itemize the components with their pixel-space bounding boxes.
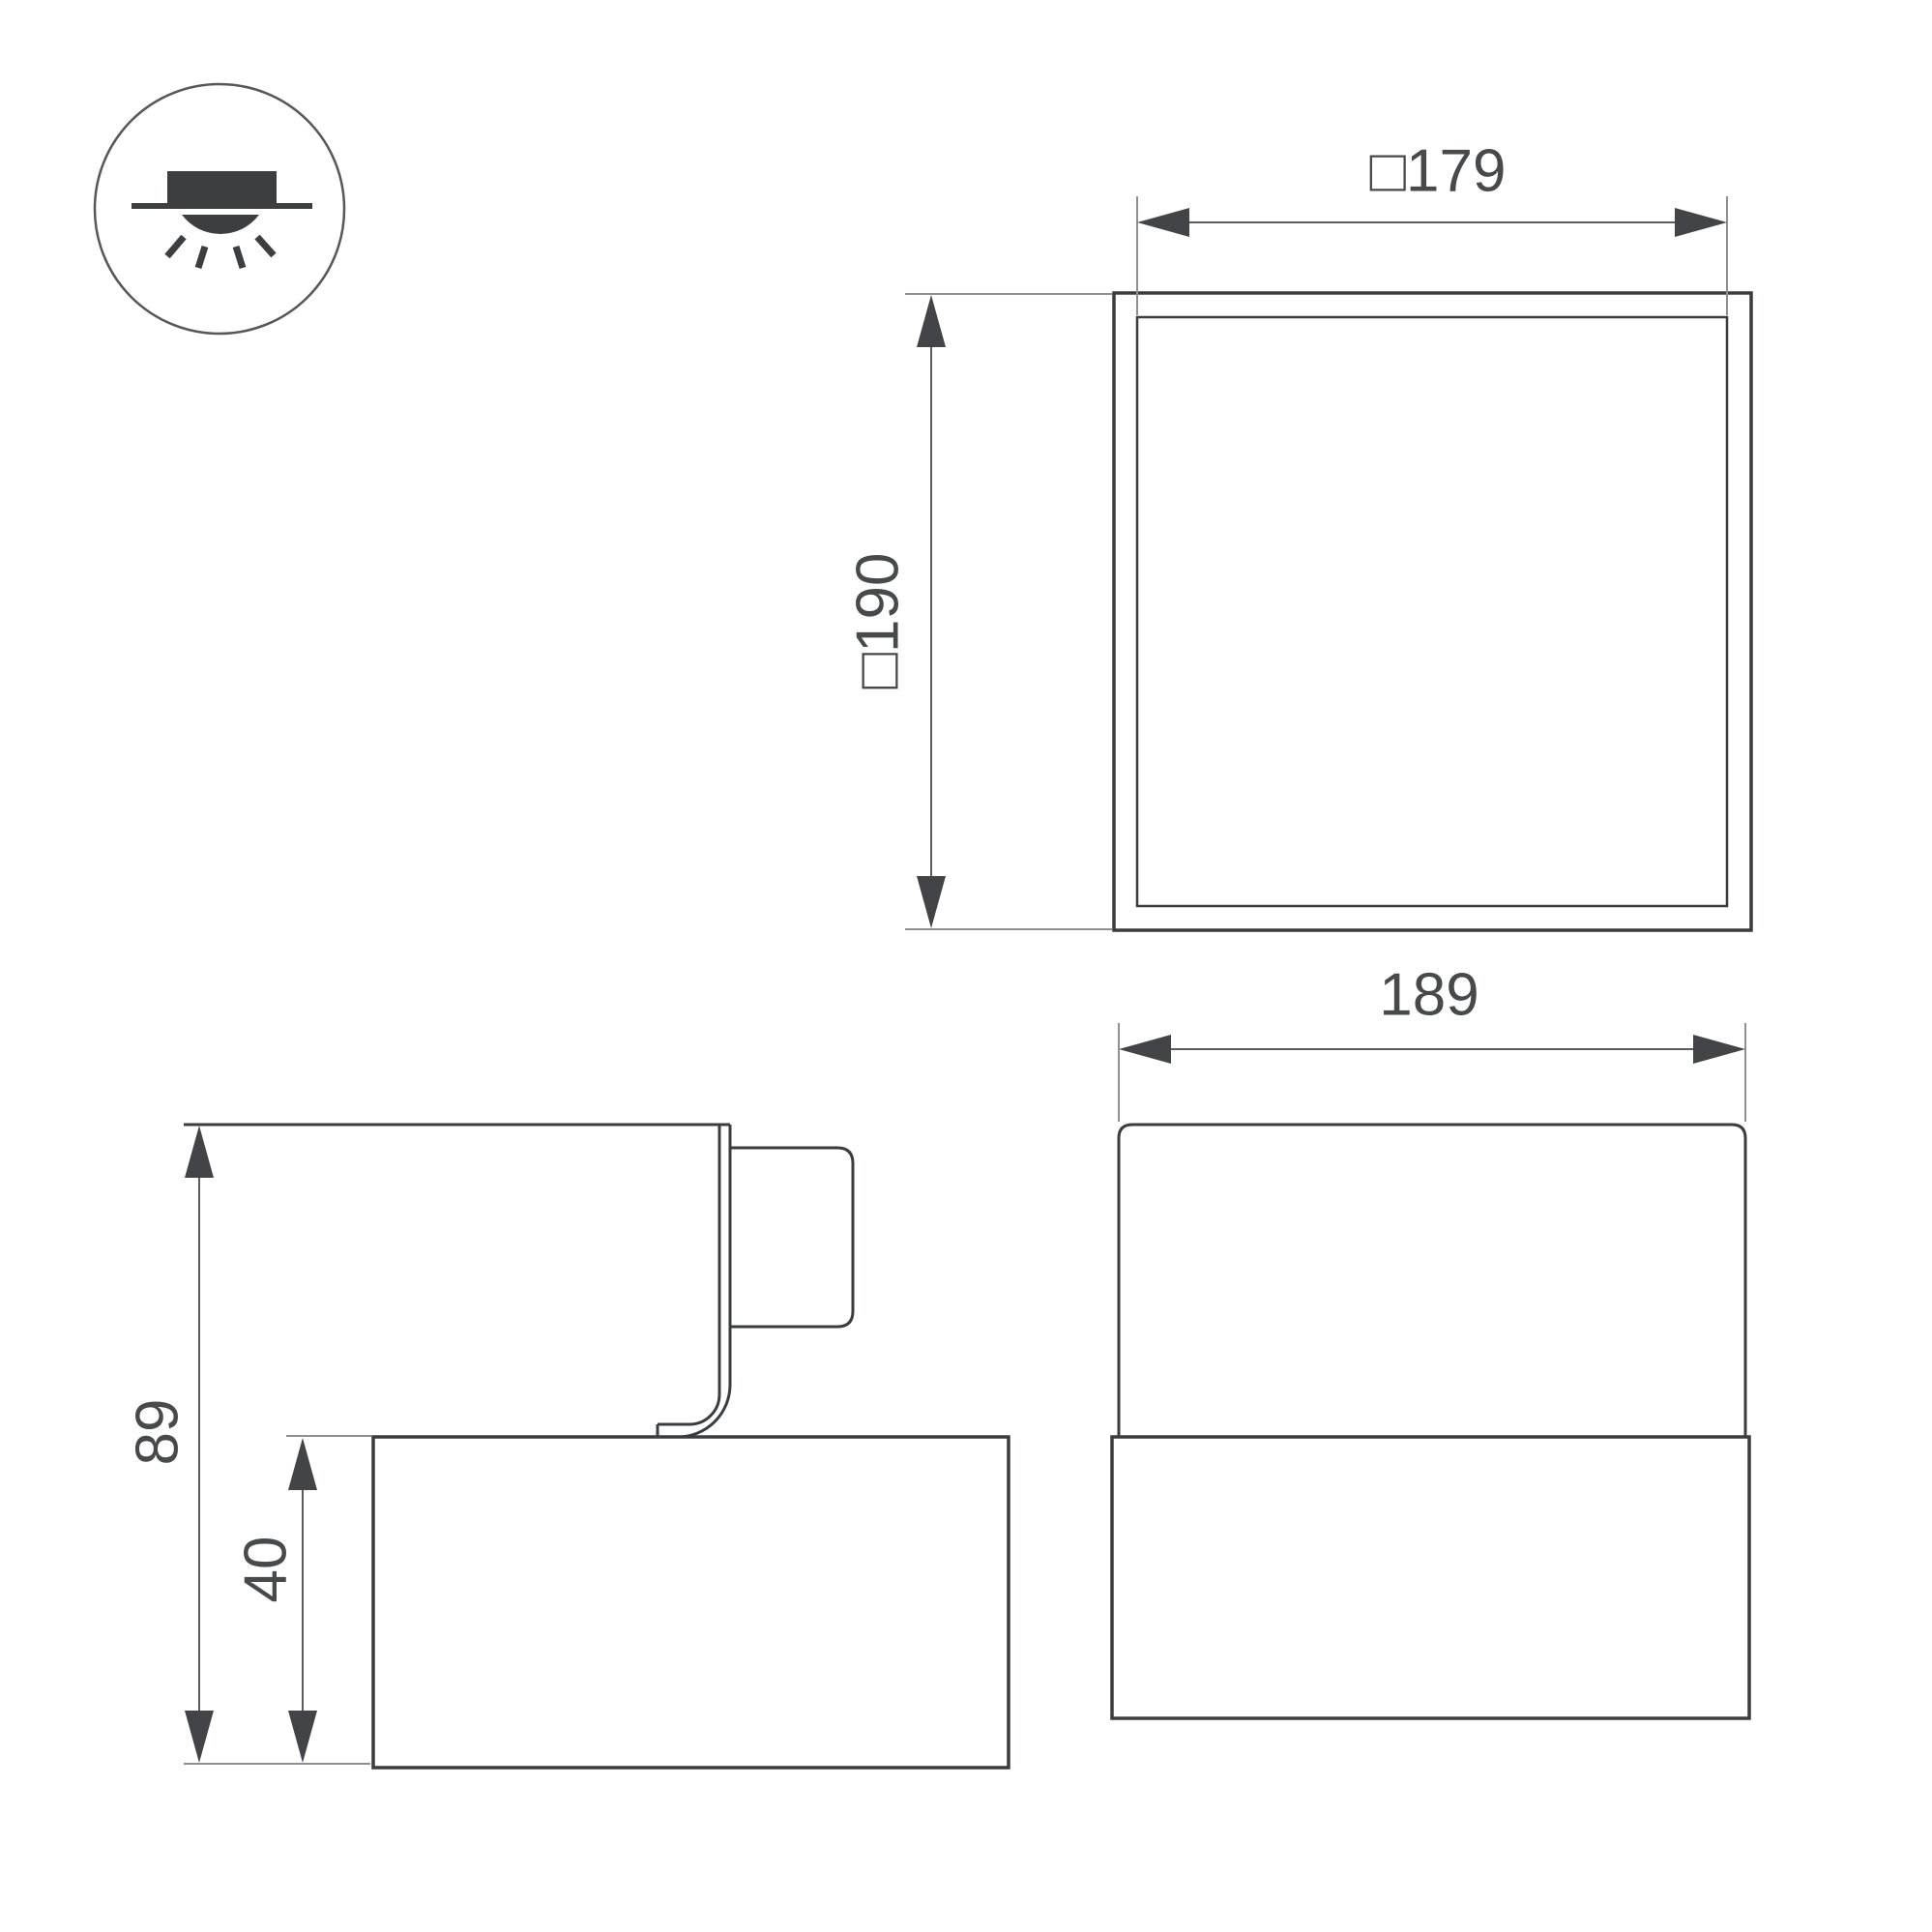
icon-fixture-body — [167, 171, 277, 204]
arrowhead-left — [1119, 1035, 1171, 1064]
dimension-label-total-height: 89 — [125, 1399, 191, 1466]
dimension-base-height-40: 40 — [233, 1436, 372, 1763]
icon-light-rays — [167, 237, 274, 268]
side-view-mounting-base — [373, 1437, 1009, 1768]
arrowhead-right — [1693, 1035, 1745, 1064]
arrowhead-left — [1137, 208, 1189, 237]
front-view: 189 — [1112, 962, 1749, 1719]
arrowhead-up — [288, 1438, 317, 1490]
dimension-height-190: □190 — [845, 294, 1113, 929]
side-view-driver-box — [730, 1148, 853, 1327]
arrowhead-up — [185, 1126, 214, 1178]
dimension-label-body-width: 189 — [1379, 962, 1478, 1029]
dimension-label-face-height: □190 — [845, 553, 912, 689]
top-view-inner-panel — [1137, 317, 1727, 906]
icon-light-dome — [182, 215, 259, 234]
dimension-total-height-89: 89 — [125, 1126, 371, 1764]
dimension-label-base-height: 40 — [233, 1537, 300, 1603]
front-view-lamp-head — [1119, 1125, 1745, 1437]
side-view-bracket — [658, 1125, 730, 1437]
mount-type-icon — [95, 84, 344, 334]
technical-drawing-canvas: □179 □190 189 — [0, 0, 1932, 1932]
arrowhead-right — [1675, 208, 1727, 237]
top-view: □179 □190 — [845, 138, 1752, 931]
bracket-inner-contour — [658, 1125, 719, 1424]
arrowhead-down — [917, 876, 946, 928]
arrowhead-down — [288, 1711, 317, 1763]
front-view-mounting-base — [1112, 1437, 1749, 1718]
arrowhead-up — [917, 295, 946, 347]
arrowhead-down — [185, 1711, 214, 1763]
dimension-width-189: 189 — [1119, 962, 1745, 1123]
top-view-outer-frame — [1114, 293, 1751, 930]
technical-drawing-sheet: □179 □190 189 — [0, 0, 1932, 1932]
side-view: 89 40 — [125, 1125, 1010, 1768]
dimension-width-179: □179 — [1137, 138, 1727, 316]
dimension-label-face-width: □179 — [1370, 138, 1507, 205]
